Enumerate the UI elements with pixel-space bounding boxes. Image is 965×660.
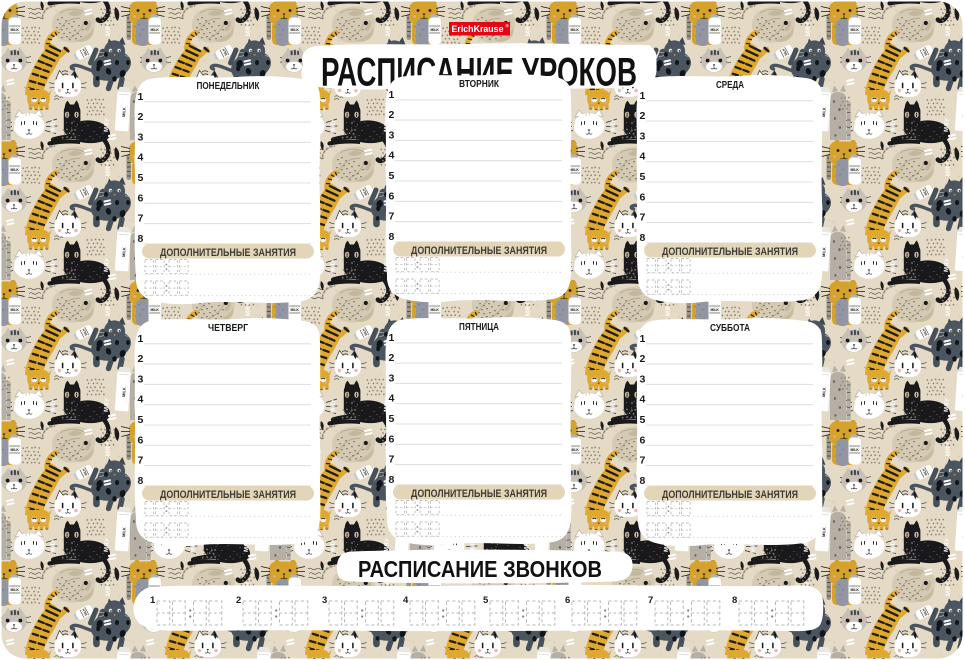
- svg-text:5: 5: [483, 595, 489, 606]
- svg-text:ErichKrause: ErichKrause: [452, 24, 504, 34]
- svg-text:ПЯТНИЦА: ПЯТНИЦА: [459, 321, 499, 333]
- svg-text:СУББОТА: СУББОТА: [710, 322, 750, 334]
- svg-text:2: 2: [236, 595, 241, 606]
- svg-text:7: 7: [648, 595, 653, 606]
- svg-text:6: 6: [565, 595, 570, 606]
- svg-text:ЧЕТВЕРГ: ЧЕТВЕРГ: [208, 322, 248, 334]
- svg-text:ПОНЕДЕЛЬНИК: ПОНЕДЕЛЬНИК: [197, 80, 260, 92]
- svg-text:ВТОРНИК: ВТОРНИК: [459, 78, 499, 90]
- svg-text:СРЕДА: СРЕДА: [716, 79, 744, 91]
- svg-text:8: 8: [732, 595, 737, 606]
- svg-text:РАСПИСАНИЕ ЗВОНКОВ: РАСПИСАНИЕ ЗВОНКОВ: [358, 556, 602, 582]
- svg-text:1: 1: [150, 595, 156, 606]
- svg-text:3: 3: [322, 595, 327, 606]
- svg-text:4: 4: [403, 595, 409, 606]
